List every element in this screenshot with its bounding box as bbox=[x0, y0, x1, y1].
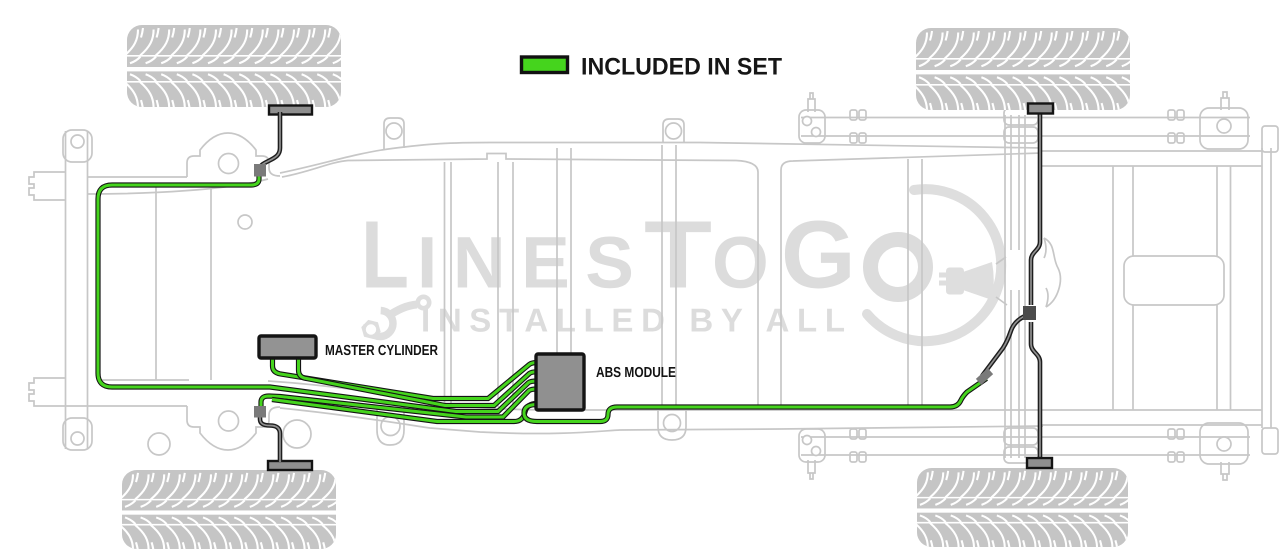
svg-text:T: T bbox=[644, 202, 712, 309]
svg-text:O: O bbox=[712, 223, 769, 304]
svg-text:INES: INES bbox=[417, 223, 634, 304]
svg-text:ABS MODULE: ABS MODULE bbox=[596, 365, 676, 381]
svg-text:G: G bbox=[781, 202, 856, 309]
svg-text:MASTER CYLINDER: MASTER CYLINDER bbox=[325, 343, 438, 359]
svg-text:INCLUDED IN SET: INCLUDED IN SET bbox=[581, 54, 782, 81]
svg-text:L: L bbox=[361, 202, 409, 309]
